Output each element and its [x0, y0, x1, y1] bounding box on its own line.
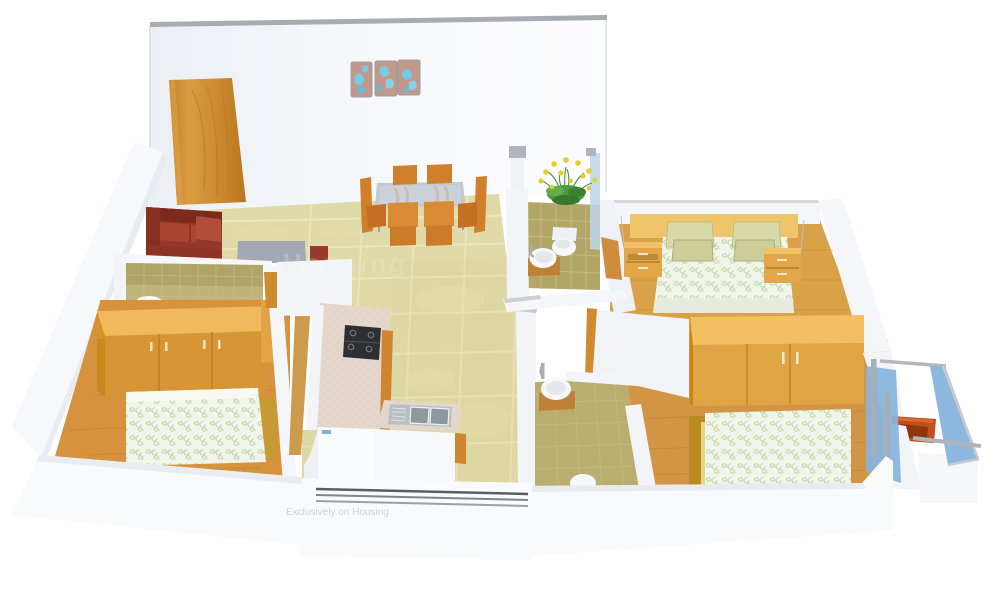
svg-text:Housing: Housing: [283, 248, 408, 278]
svg-text:Exclusively on Housing: Exclusively on Housing: [286, 507, 389, 518]
